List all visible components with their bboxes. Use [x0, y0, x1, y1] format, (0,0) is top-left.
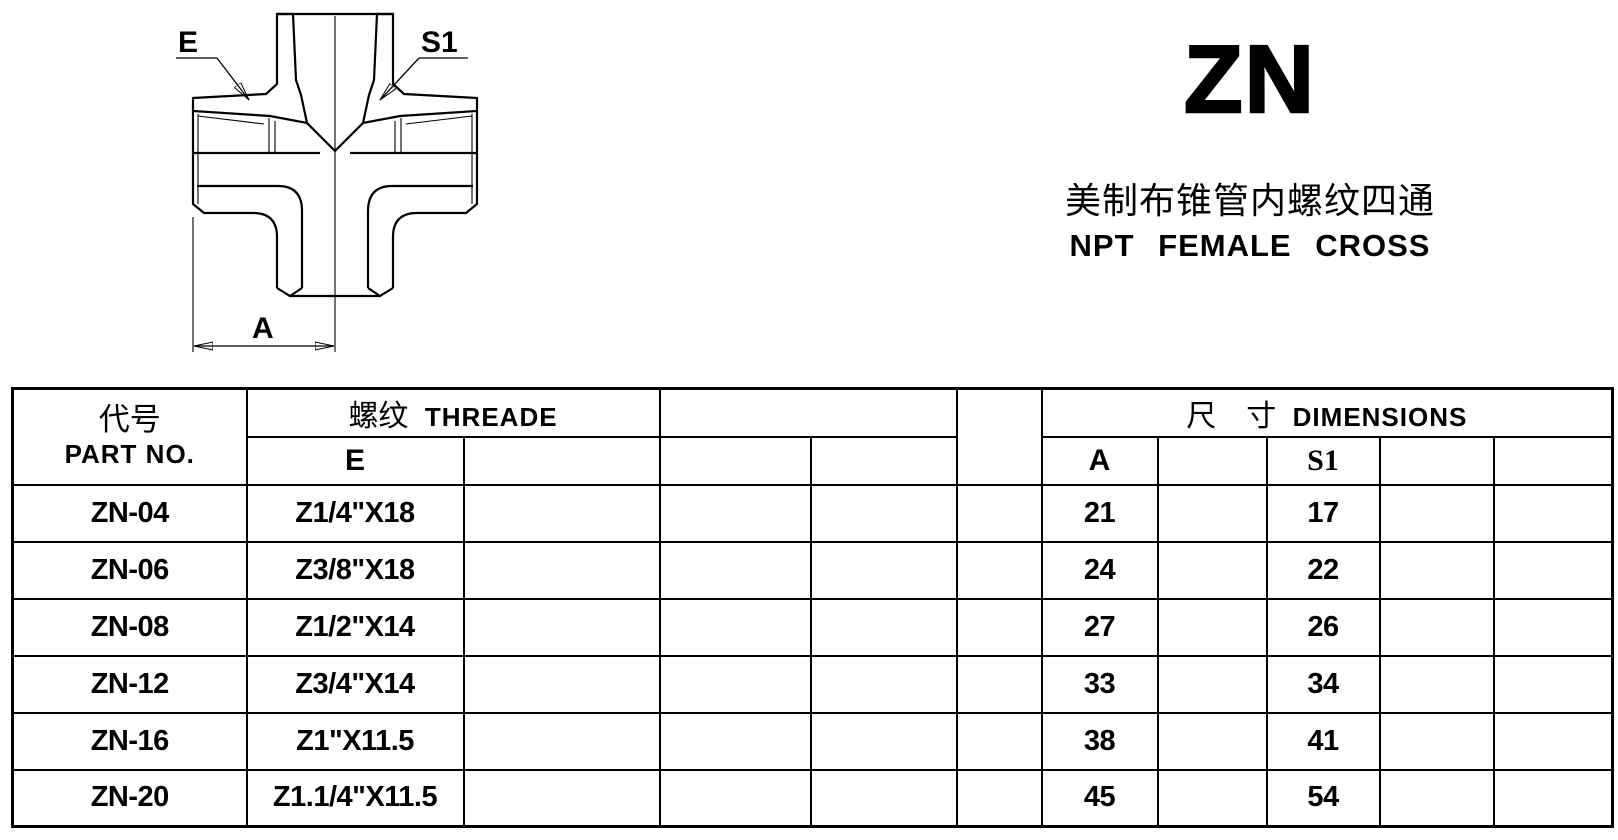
empty-cell [1158, 485, 1267, 542]
empty-cell [811, 713, 957, 770]
right-port-outline [393, 111, 477, 288]
thread-e-cell: Z3/4"X14 [247, 656, 464, 713]
part-no-cell: ZN-06 [13, 542, 247, 599]
dim-s1-cell: 17 [1267, 485, 1380, 542]
empty-cell [464, 542, 660, 599]
thread-e-cell: Z1/4"X18 [247, 485, 464, 542]
part-no-cell: ZN-08 [13, 599, 247, 656]
thread-e-cell: Z1"X11.5 [247, 713, 464, 770]
table-row: ZN-12Z3/4"X143334 [13, 656, 1613, 713]
empty-cell [464, 485, 660, 542]
empty-cell [957, 542, 1042, 599]
empty-cell [1158, 713, 1267, 770]
dim-s1-header: S1 [1267, 437, 1380, 485]
empty-header [1158, 437, 1267, 485]
empty-header [1494, 437, 1613, 485]
thread-header: 螺纹 THREADE [247, 389, 660, 437]
empty-cell [660, 656, 811, 713]
dim-a-cell: 33 [1042, 656, 1158, 713]
dimensions-header: 尺 寸 DIMENSIONS [1042, 389, 1613, 437]
empty-cell [1158, 656, 1267, 713]
table-header: 代号 PART NO. 螺纹 THREADE 尺 寸 DIMENSIONS E [13, 389, 1613, 485]
label-e: E [178, 26, 198, 59]
left-port-outline [193, 111, 277, 288]
empty-cell [464, 656, 660, 713]
table-row: ZN-06Z3/8"X182422 [13, 542, 1613, 599]
empty-cell [1158, 599, 1267, 656]
empty-cell [464, 599, 660, 656]
dimensions-header-en: DIMENSIONS [1293, 402, 1468, 432]
label-s1: S1 [421, 26, 458, 59]
dimensions-header-zh: 尺 寸 [1186, 400, 1276, 433]
thread-header-zh: 螺纹 [348, 400, 408, 433]
part-no-cell: ZN-20 [13, 770, 247, 827]
empty-cell [1494, 599, 1613, 656]
empty-cell [660, 485, 811, 542]
spacer-column [957, 389, 1042, 485]
bore-silhouette-right [368, 186, 473, 288]
edge-detail-left [198, 114, 275, 204]
empty-cell [957, 770, 1042, 827]
technical-drawing: E S1 A [0, 0, 520, 360]
table-row: ZN-08Z1/2"X142726 [13, 599, 1613, 656]
empty-cell [1380, 770, 1494, 827]
thread-e-cell: Z3/8"X18 [247, 542, 464, 599]
bore-silhouette-left [197, 186, 302, 288]
dim-s1-cell: 34 [1267, 656, 1380, 713]
section-hatch-left [193, 14, 307, 123]
empty-cell [957, 599, 1042, 656]
empty-cell [660, 770, 811, 827]
empty-cell [464, 770, 660, 827]
empty-cell [660, 713, 811, 770]
subtitle-english: NPT FEMALE CROSS [1040, 228, 1460, 264]
empty-cell [1380, 656, 1494, 713]
dim-a-cell: 27 [1042, 599, 1158, 656]
empty-cell [1380, 599, 1494, 656]
subtitle-chinese: 美制布锥管内螺纹四通 [1040, 181, 1460, 222]
label-a: A [252, 312, 274, 345]
table-row: ZN-04Z1/4"X182117 [13, 485, 1613, 542]
dim-s1-cell: 22 [1267, 542, 1380, 599]
thread-e-header: E [247, 437, 464, 485]
dim-s1-cell: 26 [1267, 599, 1380, 656]
dim-s1-cell: 54 [1267, 770, 1380, 827]
empty-cell [660, 542, 811, 599]
empty-header [811, 437, 957, 485]
empty-cell [1494, 656, 1613, 713]
empty-cell [1158, 770, 1267, 827]
dim-a-cell: 24 [1042, 542, 1158, 599]
empty-cell [464, 713, 660, 770]
part-no-header-zh: 代号 [14, 403, 246, 437]
empty-cell [1494, 713, 1613, 770]
empty-cell [957, 656, 1042, 713]
thread-e-cell: Z1.1/4"X11.5 [247, 770, 464, 827]
empty-cell [811, 485, 957, 542]
catalog-page: E S1 A ZN 美制布锥管内螺纹四通 NPT FEMALE CROSS 代号 [0, 0, 1618, 840]
thread-e-cell: Z1/2"X14 [247, 599, 464, 656]
empty-cell [957, 713, 1042, 770]
empty-cell [1158, 542, 1267, 599]
section-hatch-right [363, 14, 477, 123]
table-row: ZN-16Z1"X11.53841 [13, 713, 1613, 770]
dim-a-cell: 21 [1042, 485, 1158, 542]
spare-header [660, 389, 957, 437]
empty-cell [1494, 770, 1613, 827]
thread-header-en: THREADE [425, 402, 558, 432]
dim-s1-cell: 41 [1267, 713, 1380, 770]
empty-cell [1380, 542, 1494, 599]
empty-cell [1380, 713, 1494, 770]
empty-cell [811, 599, 957, 656]
title-block: ZN 美制布锥管内螺纹四通 NPT FEMALE CROSS [1040, 30, 1460, 264]
empty-cell [811, 770, 957, 827]
part-no-cell: ZN-16 [13, 713, 247, 770]
dimensions-table: 代号 PART NO. 螺纹 THREADE 尺 寸 DIMENSIONS E [11, 387, 1614, 828]
edge-detail-right [395, 114, 472, 204]
empty-header [464, 437, 660, 485]
series-code: ZN [1040, 30, 1460, 131]
dim-a-header: A [1042, 437, 1158, 485]
table-row: ZN-20Z1.1/4"X11.54554 [13, 770, 1613, 827]
dim-a-cell: 38 [1042, 713, 1158, 770]
part-no-cell: ZN-12 [13, 656, 247, 713]
empty-header [660, 437, 811, 485]
label-e-leader [217, 58, 249, 100]
empty-cell [957, 485, 1042, 542]
empty-cell [1494, 542, 1613, 599]
empty-cell [811, 656, 957, 713]
empty-cell [660, 599, 811, 656]
empty-cell [1380, 485, 1494, 542]
part-no-header-en: PART NO. [14, 439, 246, 470]
part-no-cell: ZN-04 [13, 485, 247, 542]
dim-a-cell: 45 [1042, 770, 1158, 827]
empty-cell [811, 542, 957, 599]
part-no-header: 代号 PART NO. [13, 389, 247, 485]
table-body: ZN-04Z1/4"X182117ZN-06Z3/8"X182422ZN-08Z… [13, 485, 1613, 827]
empty-header [1380, 437, 1494, 485]
empty-cell [1494, 485, 1613, 542]
